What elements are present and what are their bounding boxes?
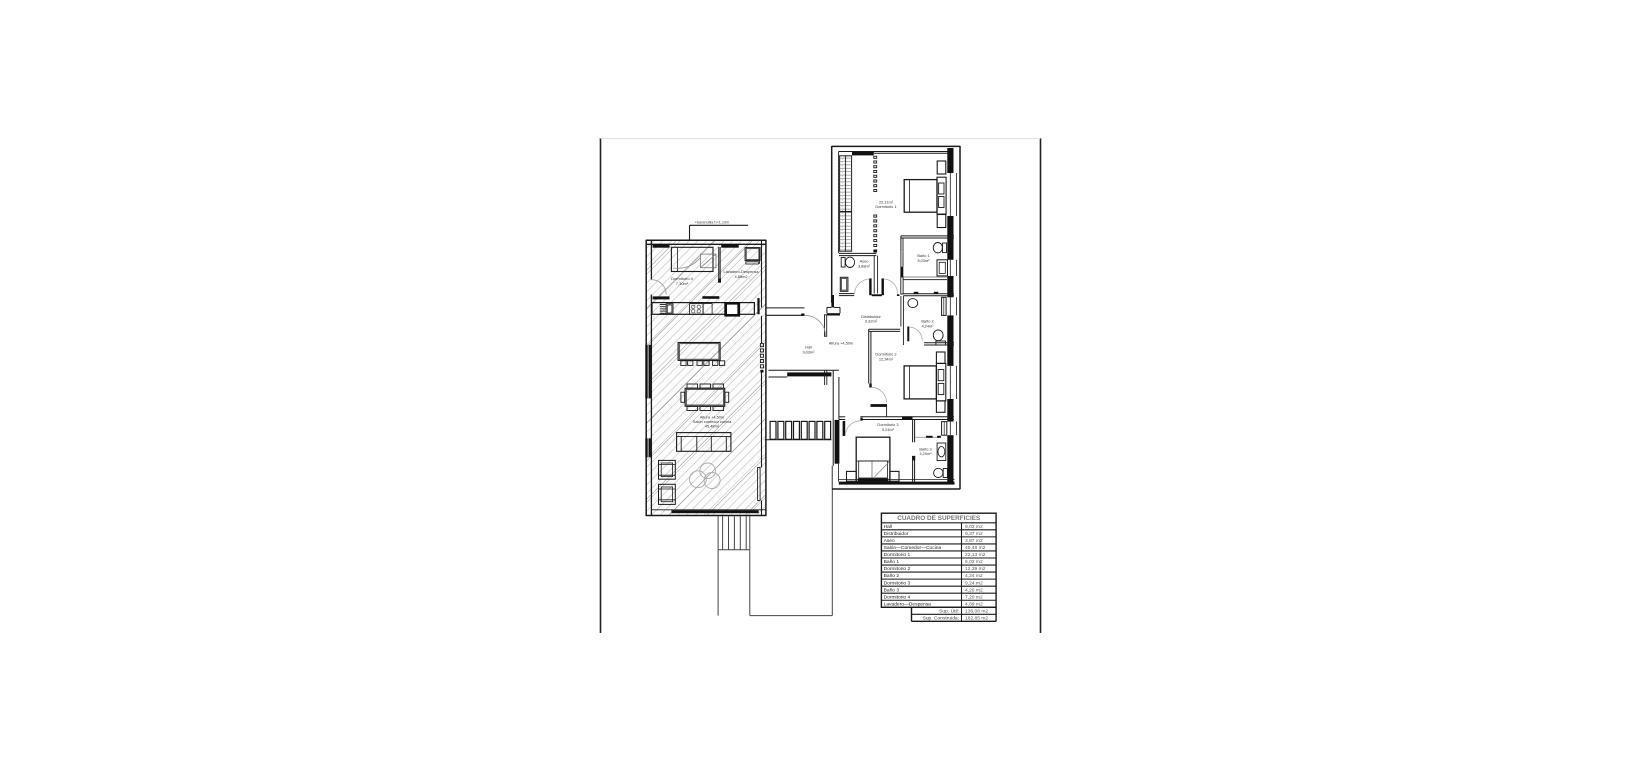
svg-text:Dormitorio 1: Dormitorio 1 xyxy=(875,204,896,209)
svg-text:45,48 m2: 45,48 m2 xyxy=(965,545,986,551)
svg-text:4,89 m2: 4,89 m2 xyxy=(965,601,983,607)
svg-text:Dormitorio 4: Dormitorio 4 xyxy=(884,594,911,600)
svg-text:9,24m²: 9,24m² xyxy=(882,427,895,432)
svg-text:12,39 m2: 12,39 m2 xyxy=(965,566,986,572)
svg-text:4,88m2: 4,88m2 xyxy=(735,274,748,279)
svg-text:9,03 m2: 9,03 m2 xyxy=(965,524,983,530)
svg-text:162,85 m2: 162,85 m2 xyxy=(965,615,988,621)
svg-text:Dormitorio 1: Dormitorio 1 xyxy=(884,552,911,558)
svg-text:7,20 m2: 7,20 m2 xyxy=(965,594,983,600)
svg-text:Lavadero—Despensa: Lavadero—Despensa xyxy=(884,601,932,607)
svg-text:5,03m²: 5,03m² xyxy=(917,258,930,263)
svg-text:4,24m²: 4,24m² xyxy=(921,323,934,328)
svg-text:Salón—Comedor—Cocina: Salón—Comedor—Cocina xyxy=(884,545,942,551)
svg-text:22,13 m2: 22,13 m2 xyxy=(965,552,986,558)
svg-text:9,32m²: 9,32m² xyxy=(865,319,878,324)
svg-text:Altura +4,50m: Altura +4,50m xyxy=(829,341,853,346)
svg-text:CUADRO DE SUPERFICIES: CUADRO DE SUPERFICIES xyxy=(897,515,981,522)
svg-text:5,03 m2: 5,03 m2 xyxy=(965,559,983,565)
svg-text:4,20m²: 4,20m² xyxy=(919,451,932,456)
svg-text:Sup. Útil:: Sup. Útil: xyxy=(939,607,959,614)
svg-text:Baño 3: Baño 3 xyxy=(884,587,900,593)
svg-text:4,24 m2: 4,24 m2 xyxy=(965,573,983,579)
svg-text:Baño 2: Baño 2 xyxy=(884,573,900,579)
svg-text:3,87 m2: 3,87 m2 xyxy=(965,538,983,544)
svg-text:Sup. Construida:: Sup. Construida: xyxy=(923,615,959,621)
svg-text:3,88m²: 3,88m² xyxy=(858,263,871,268)
svg-text:12,34m²: 12,34m² xyxy=(879,356,894,361)
svg-text:4,20 m2: 4,20 m2 xyxy=(965,587,983,593)
svg-text:9,03m²: 9,03m² xyxy=(802,349,815,354)
svg-text:Hall: Hall xyxy=(884,524,892,530)
svg-text:45,48m²: 45,48m² xyxy=(705,424,720,429)
svg-text:7,30m²: 7,30m² xyxy=(676,281,689,286)
svg-text:Distribuidor: Distribuidor xyxy=(884,531,909,537)
svg-text:Dormitorio 2: Dormitorio 2 xyxy=(884,566,911,572)
svg-text:Dormitorio 3: Dormitorio 3 xyxy=(884,580,911,586)
svg-text:Aseo: Aseo xyxy=(884,538,895,544)
svg-text:Baño 1: Baño 1 xyxy=(884,559,900,565)
svg-text:9,24 m2: 9,24 m2 xyxy=(965,580,983,586)
svg-text:136,08 m2: 136,08 m2 xyxy=(965,608,988,614)
svg-text:9,37 m2: 9,37 m2 xyxy=(965,531,983,537)
svg-text:+barandilla h=1,10m: +barandilla h=1,10m xyxy=(695,220,730,224)
